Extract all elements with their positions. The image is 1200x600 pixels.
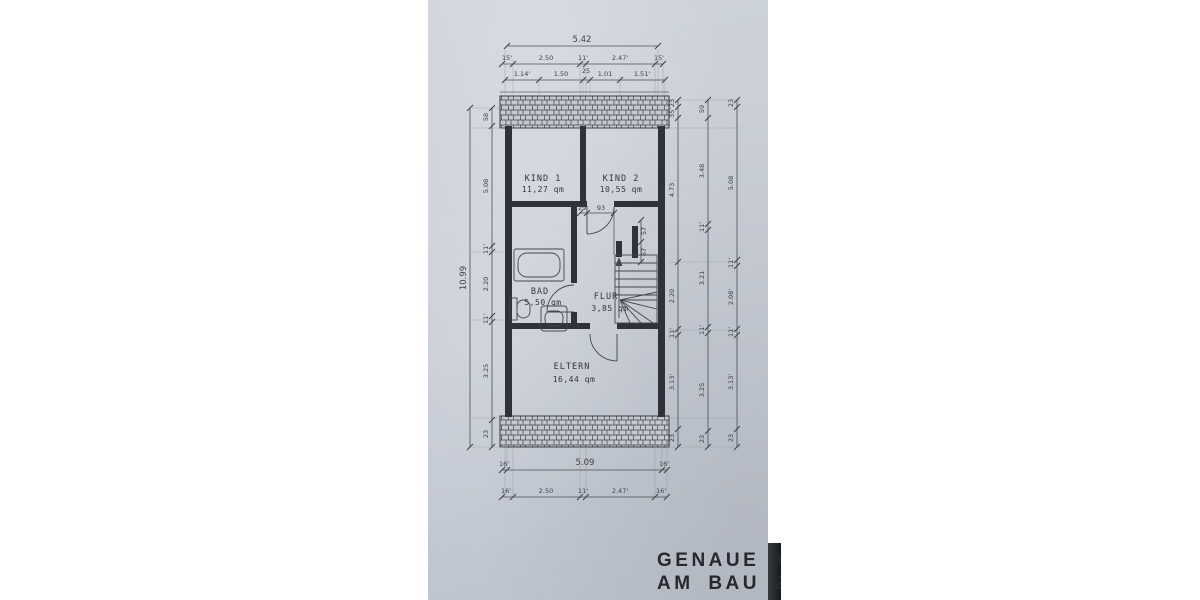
dim-bot-r1-2: 16' bbox=[659, 460, 669, 468]
right-exterior-wall bbox=[658, 126, 665, 417]
dim-bot-r2-1: 2.50 bbox=[539, 487, 553, 495]
room-label-eltern: ELTERN bbox=[554, 362, 591, 372]
dim-rm-2: 11' bbox=[698, 222, 706, 232]
dim-top-r2-1: 2.50 bbox=[539, 54, 553, 62]
stair-treads bbox=[615, 263, 657, 295]
wall-kind-divider bbox=[580, 126, 586, 205]
dim-top-r3-2: 25 bbox=[582, 67, 590, 75]
room-label-bad: BAD bbox=[531, 287, 549, 297]
bathtub-inner bbox=[518, 253, 560, 277]
dim-top-r2-0: 15' bbox=[502, 54, 512, 62]
room-area-flur: 3,85 qm bbox=[591, 304, 628, 313]
wall-mid-left bbox=[505, 201, 587, 207]
top-masonry-wall bbox=[500, 96, 669, 128]
floor-plan-drawing: KIND 1 11,27 qm KIND 2 10,55 qm BAD 5,50… bbox=[0, 0, 1200, 600]
dimension-labels-right-middle: 59 3.48 11' 3.21 11' 3.25 23 bbox=[698, 105, 706, 443]
page-background: { "note": { "line1": "GENAUE MAS", "line… bbox=[0, 0, 1200, 600]
dim-ri-5: 3.13' bbox=[668, 374, 676, 390]
dim-left-4: 11' bbox=[482, 314, 490, 324]
dimension-labels-top: 5.42 15' 2.50 11' 2.47' 15' 1.14' 1.50 2… bbox=[502, 35, 664, 78]
doors bbox=[547, 207, 617, 361]
dim-ro-1: 5.08 bbox=[727, 176, 735, 190]
room-area-kind1: 11,27 qm bbox=[522, 185, 565, 194]
dim-top-r3-4: 1.51' bbox=[634, 70, 650, 78]
dim-rm-0: 59 bbox=[698, 105, 706, 113]
dim-ro-0: 23 bbox=[727, 99, 735, 107]
room-label-kind1: KIND 1 bbox=[525, 174, 562, 184]
dim-ro-2: 11' bbox=[727, 258, 735, 268]
dim-rm-5: 3.25 bbox=[698, 383, 706, 397]
room-label-flur: FLUR bbox=[594, 292, 618, 302]
stair-up-arrow bbox=[616, 257, 623, 266]
dim-rm-3: 3.21 bbox=[698, 271, 706, 285]
dim-ri-6: 23 bbox=[668, 434, 676, 442]
dim-int-93: 93 bbox=[597, 204, 605, 212]
dim-left-2: 11' bbox=[482, 244, 490, 254]
wall-mid-right bbox=[614, 201, 658, 207]
dim-bot-r2-2: 11' bbox=[578, 487, 588, 495]
dim-ro-4: 11' bbox=[727, 327, 735, 337]
dim-rm-1: 3.48 bbox=[698, 164, 706, 178]
dim-top-r3-0: 1.14' bbox=[514, 70, 530, 78]
room-area-eltern: 16,44 qm bbox=[553, 375, 596, 384]
dim-rm-4: 11' bbox=[698, 325, 706, 335]
dim-ri-4: 11' bbox=[668, 328, 676, 338]
dim-top-total: 5.42 bbox=[573, 35, 592, 45]
bathtub-outline bbox=[514, 249, 564, 281]
wall-eltern-right bbox=[617, 323, 658, 329]
dim-left-6: 23 bbox=[482, 430, 490, 438]
dimension-labels-left: 10.99 58 5.08 11' 2.20 11' 3.25 23 bbox=[459, 113, 490, 438]
dim-ri-0: 23 bbox=[668, 99, 676, 107]
dim-left-1: 5.08 bbox=[482, 179, 490, 193]
dim-rm-6: 23 bbox=[698, 435, 706, 443]
dim-left-3: 2.20 bbox=[482, 277, 490, 291]
dim-ro-3: 2.08' bbox=[727, 289, 735, 305]
dim-ri-1: 35' bbox=[668, 108, 676, 118]
dim-left-total: 10.99 bbox=[459, 266, 469, 290]
dim-ri-3: 2.20 bbox=[668, 289, 676, 303]
bottom-masonry-wall bbox=[500, 416, 669, 447]
door-arc-eltern bbox=[590, 334, 617, 361]
dim-top-r2-4: 15' bbox=[654, 54, 664, 62]
dim-bot-r2-4: 16' bbox=[656, 487, 666, 495]
dim-left-0: 58 bbox=[482, 113, 490, 121]
room-area-bad: 5,50 qm bbox=[524, 298, 561, 307]
room-label-kind2: KIND 2 bbox=[603, 174, 640, 184]
dim-int-57: 57 bbox=[640, 227, 648, 235]
dim-int-67: 67 bbox=[640, 248, 648, 256]
dim-top-r3-1: 1.50 bbox=[554, 70, 568, 78]
left-exterior-wall bbox=[505, 126, 512, 417]
dim-ri-2: 4.73 bbox=[668, 183, 676, 197]
dimension-labels-right-inner: 23 35' 4.73 2.20 11' 3.13' 23 bbox=[668, 99, 676, 442]
wall-eltern-left bbox=[505, 323, 590, 329]
dim-bot-r2-0: 16' bbox=[501, 487, 511, 495]
dimension-labels-right-outer: 23 5.08 11' 2.08' 11' 3.13' 23 bbox=[727, 99, 735, 442]
dim-int-29: 29' bbox=[578, 204, 588, 212]
dim-ro-5: 3.13' bbox=[727, 374, 735, 390]
dim-ro-6: 23 bbox=[727, 434, 735, 442]
wall-stub-stair-a bbox=[632, 226, 638, 258]
dim-top-r2-2: 11' bbox=[578, 54, 588, 62]
dim-bot-r1-1: 5.09 bbox=[576, 458, 595, 468]
dim-top-r2-3: 2.47' bbox=[612, 54, 628, 62]
dim-top-r3-3: 1.01 bbox=[598, 70, 612, 78]
dimension-labels-bottom: 16' 5.09 16' 16' 2.50 11' 2.47' 16' bbox=[499, 458, 669, 495]
dim-bot-r1-0: 16' bbox=[499, 460, 509, 468]
dim-left-5: 3.25 bbox=[482, 364, 490, 378]
room-area-kind2: 10,55 qm bbox=[600, 185, 643, 194]
wall-bad-flur-upper bbox=[571, 207, 577, 283]
dim-bot-r2-3: 2.47' bbox=[612, 487, 628, 495]
